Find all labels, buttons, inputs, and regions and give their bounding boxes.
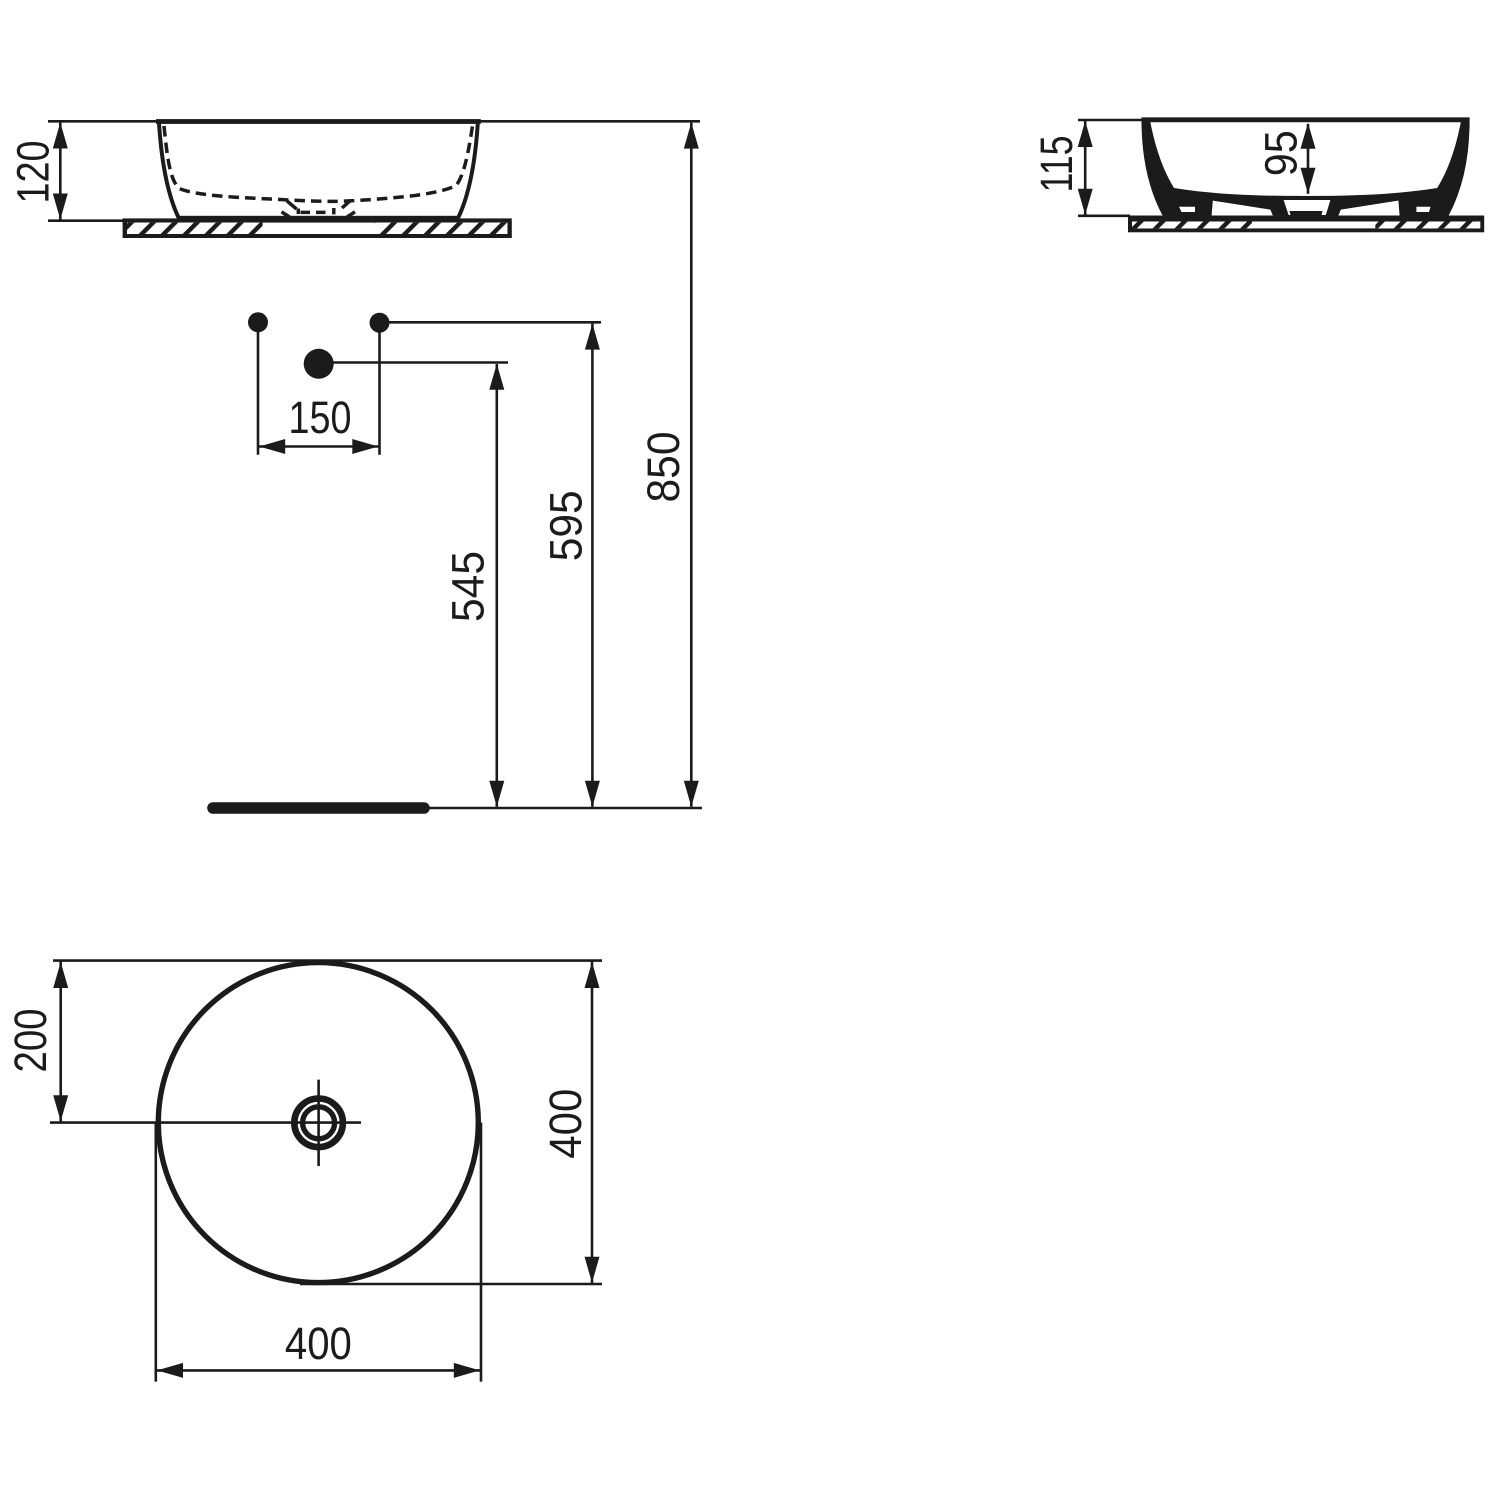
svg-text:400: 400 [540, 1089, 591, 1159]
svg-text:115: 115 [1031, 136, 1082, 193]
svg-text:120: 120 [8, 141, 59, 204]
svg-text:400: 400 [285, 1318, 352, 1369]
svg-text:200: 200 [5, 1009, 56, 1073]
svg-text:595: 595 [541, 490, 592, 561]
svg-text:850: 850 [638, 432, 689, 503]
svg-text:545: 545 [443, 551, 494, 622]
svg-text:95: 95 [1256, 130, 1307, 176]
svg-text:150: 150 [289, 392, 352, 443]
